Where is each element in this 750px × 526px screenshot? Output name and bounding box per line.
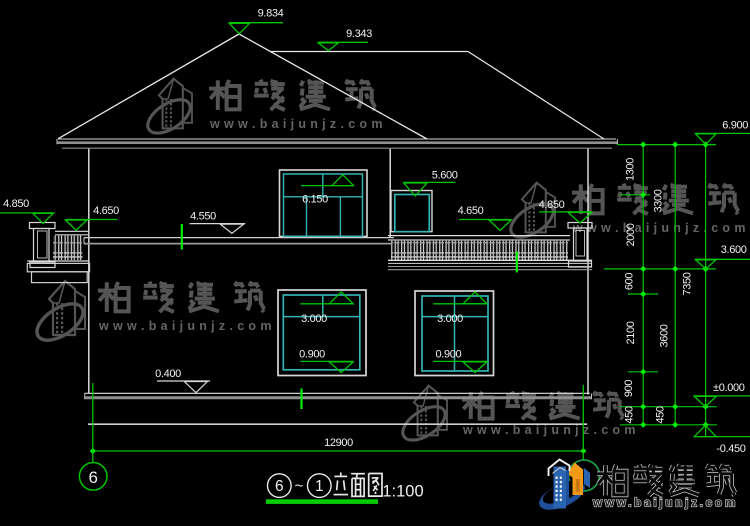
svg-text:0.900: 0.900 xyxy=(299,349,325,361)
svg-text:0.900: 0.900 xyxy=(436,349,462,361)
svg-text:3.000: 3.000 xyxy=(301,313,327,325)
svg-text:3.000: 3.000 xyxy=(437,313,463,325)
svg-text:6.150: 6.150 xyxy=(302,194,328,206)
svg-text:3.600: 3.600 xyxy=(721,244,747,256)
svg-text:3300: 3300 xyxy=(653,189,665,212)
svg-text:7350: 7350 xyxy=(682,272,694,295)
svg-text:1:100: 1:100 xyxy=(382,483,423,501)
svg-text:w w w . b a i j u n j z . c o: w w w . b a i j u n j z . c o m xyxy=(209,117,383,131)
svg-text:6.900: 6.900 xyxy=(722,120,748,132)
svg-text:4.550: 4.550 xyxy=(190,211,216,223)
svg-text:450: 450 xyxy=(655,406,667,424)
svg-text:6: 6 xyxy=(275,478,284,495)
svg-text:w w w . b a i j u n j z . c o: w w w . b a i j u n j z . c o m xyxy=(462,423,636,437)
svg-text:4.850: 4.850 xyxy=(539,199,565,211)
svg-text:450: 450 xyxy=(624,406,636,424)
svg-text:4.850: 4.850 xyxy=(3,198,29,210)
svg-text:600: 600 xyxy=(624,273,636,291)
svg-text:1300: 1300 xyxy=(625,158,637,181)
svg-text:www.baijunjz.com: www.baijunjz.com xyxy=(592,496,738,510)
svg-text:9.834: 9.834 xyxy=(258,8,284,20)
svg-text:1: 1 xyxy=(315,478,324,495)
svg-text:6: 6 xyxy=(88,468,97,487)
svg-text:2100: 2100 xyxy=(625,321,637,344)
svg-text:~: ~ xyxy=(295,478,304,495)
svg-text:900: 900 xyxy=(623,380,635,398)
svg-text:9.343: 9.343 xyxy=(346,28,372,40)
svg-text:±0.000: ±0.000 xyxy=(713,382,745,394)
svg-text:5.600: 5.600 xyxy=(432,169,458,181)
svg-text:w w w . b a i j u n j z . c o: w w w . b a i j u n j z . c o m xyxy=(572,221,746,235)
svg-text:3600: 3600 xyxy=(659,324,671,347)
svg-text:12900: 12900 xyxy=(324,437,353,449)
svg-text:w w w . b a i j u n j z . c o: w w w . b a i j u n j z . c o m xyxy=(98,319,272,333)
svg-text:4.650: 4.650 xyxy=(458,205,484,217)
svg-text:4.650: 4.650 xyxy=(93,205,119,217)
svg-text:-0.450: -0.450 xyxy=(716,443,745,455)
svg-text:0.400: 0.400 xyxy=(155,368,181,380)
svg-text:2000: 2000 xyxy=(625,223,637,246)
